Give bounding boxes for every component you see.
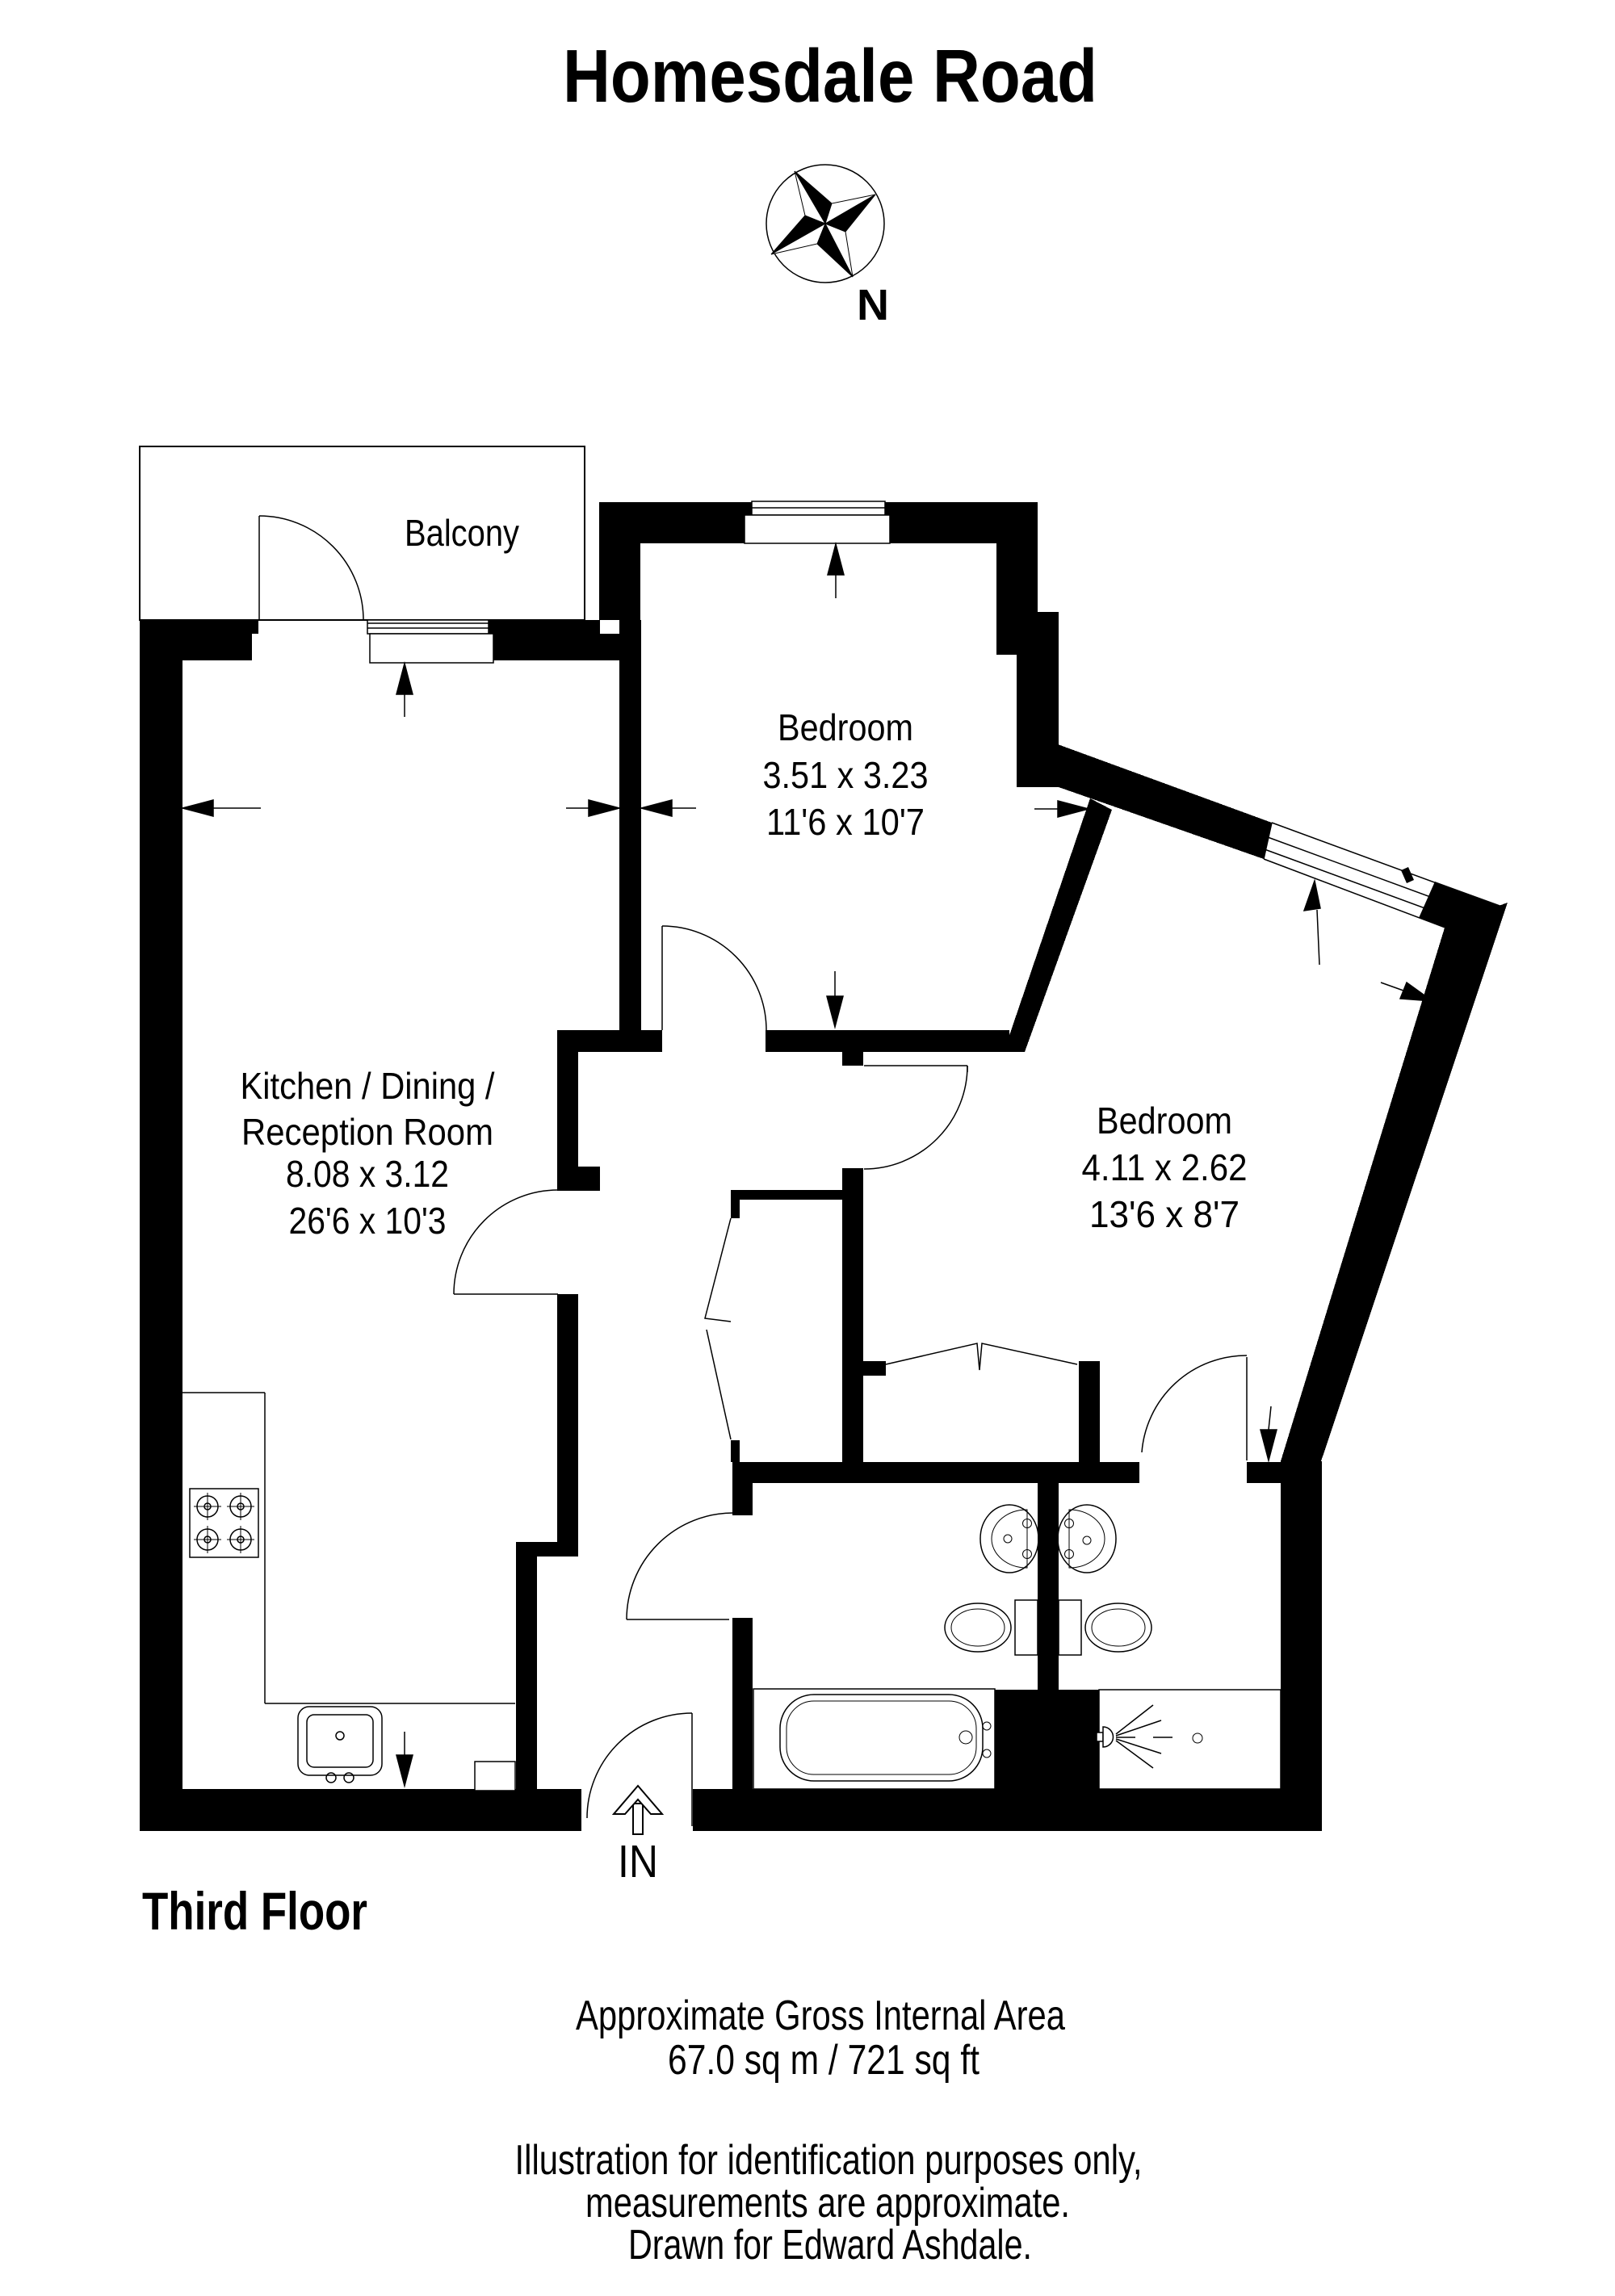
svg-text:Balcony: Balcony [405,512,519,554]
svg-text:Reception Room: Reception Room [241,1111,493,1153]
svg-text:IN: IN [618,1836,658,1887]
svg-text:26'6 x 10'3: 26'6 x 10'3 [289,1200,447,1242]
svg-text:Bedroom: Bedroom [778,706,913,748]
svg-text:Approximate Gross Internal Are: Approximate Gross Internal Area [576,1992,1065,2039]
svg-text:13'6 x 8'7: 13'6 x 8'7 [1089,1193,1240,1235]
svg-text:Homesdale Road: Homesdale Road [563,34,1097,118]
svg-text:N: N [857,281,889,329]
svg-text:67.0 sq m / 721 sq ft: 67.0 sq m / 721 sq ft [668,2037,979,2084]
svg-text:Kitchen / Dining /: Kitchen / Dining / [241,1065,495,1107]
svg-text:Illustration for identificatio: Illustration for identification purposes… [515,2137,1143,2184]
svg-text:11'6 x 10'7: 11'6 x 10'7 [766,801,925,843]
svg-text:measurements are approximate.: measurements are approximate. [585,2180,1070,2227]
svg-text:3.51 x 3.23: 3.51 x 3.23 [763,754,929,796]
svg-text:4.11 x 2.62: 4.11 x 2.62 [1082,1146,1248,1188]
svg-text:Drawn for Edward Ashdale.: Drawn for Edward Ashdale. [628,2222,1032,2269]
svg-text:Bedroom: Bedroom [1097,1100,1232,1142]
svg-text:8.08 x 3.12: 8.08 x 3.12 [286,1153,449,1195]
svg-text:Third Floor: Third Floor [142,1881,367,1941]
